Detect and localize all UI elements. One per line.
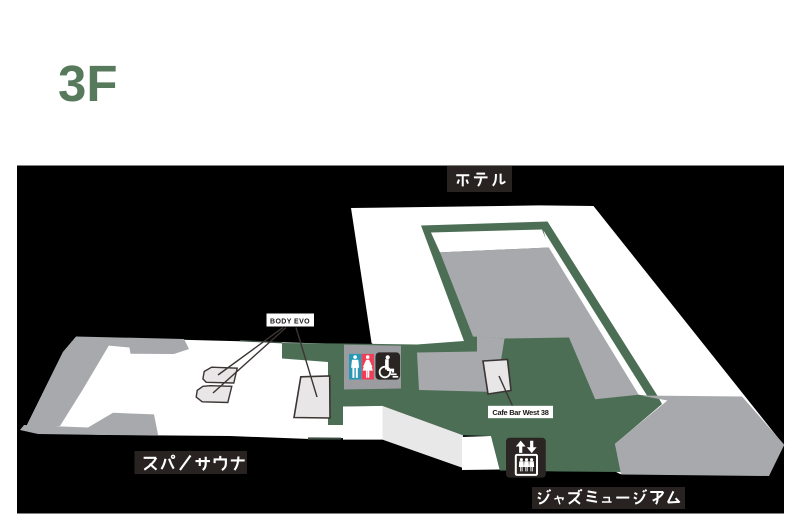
svg-text:3F: 3F <box>58 55 118 112</box>
svg-text:Cafe Bar West 38: Cafe Bar West 38 <box>492 408 548 417</box>
svg-text:BODY EVO: BODY EVO <box>270 319 310 326</box>
